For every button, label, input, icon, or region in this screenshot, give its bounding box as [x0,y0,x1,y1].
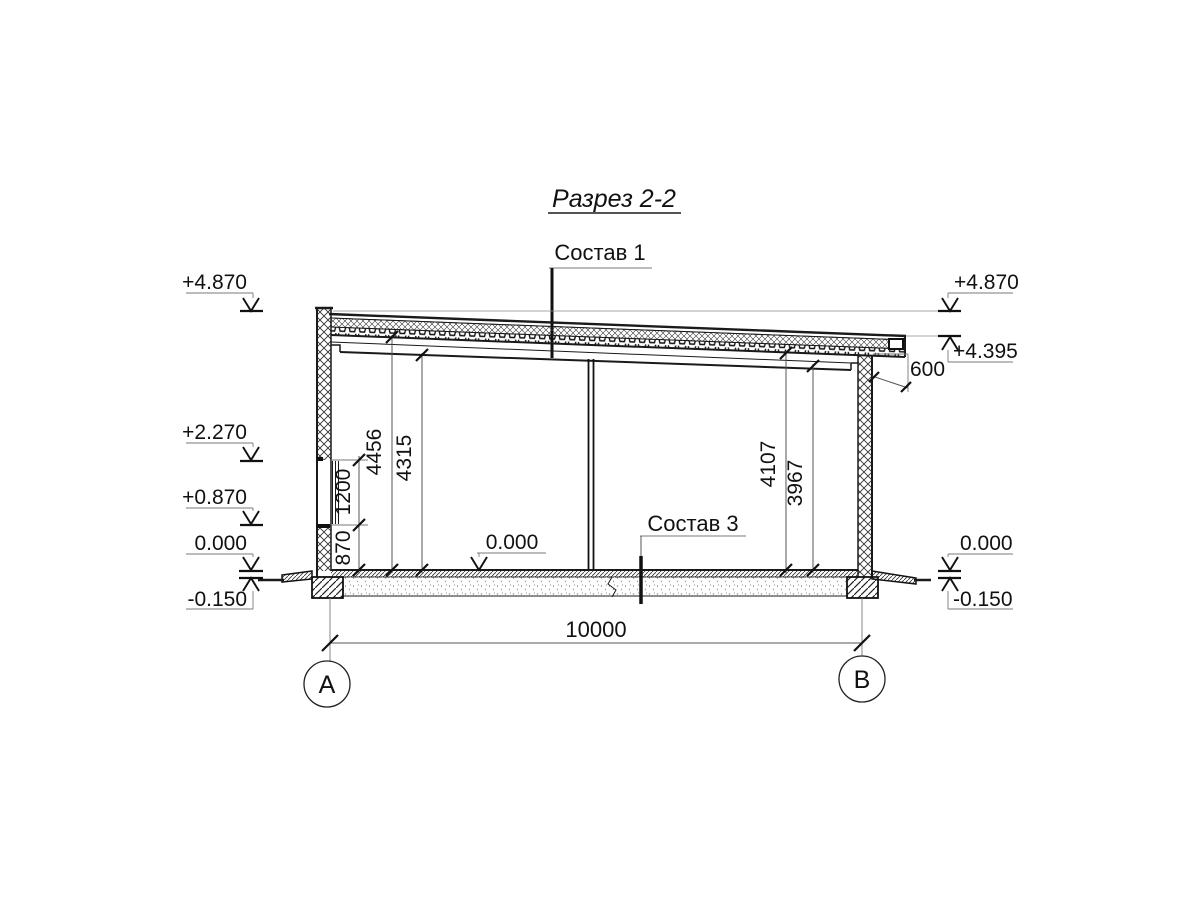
section-drawing: Разрез 2-2 Состав 1 [0,0,1200,900]
elevation-value: +4.395 [953,340,1018,363]
dim-roof-overhang: 600 [869,354,945,392]
level-arrow-down [243,298,259,311]
floor-screed-band [331,570,858,577]
drawing-title: Разрез 2-2 [552,185,676,213]
elevation-mark-right-4870: +4.870 [938,271,1019,311]
dim-span-axes: 10000 [322,598,870,661]
left-wall-hatch-upper [317,308,331,460]
level-arrow-down [243,511,259,524]
dim-10000-label: 10000 [565,617,626,642]
axis-b-label: В [854,666,871,694]
dim-heights-right: 4107 3967 [757,347,819,576]
window-head-detail [317,457,323,461]
level-arrow-down [471,557,487,570]
elevation-value: 0.000 [194,532,247,555]
elevation-value: +4.870 [954,271,1019,294]
right-corbel [851,363,858,370]
elevation-mark-left-4870: +4.870 [182,271,263,311]
elevation-mark-left-0870: +0.870 [182,486,263,525]
axis-a-label: А [319,671,336,699]
callout-floor-label: Состав 3 [647,511,738,536]
axis-bubble-a: А [304,661,350,707]
elevation-mark-right-4395: +4.395 [938,336,1018,363]
left-corbel [331,345,340,352]
dim-heights-left: 4456 4315 [363,331,428,576]
dim-1200-label: 1200 [332,469,355,516]
elevation-value: 0.000 [960,532,1013,555]
blind-area-right [872,571,931,584]
elevation-value: +4.870 [182,271,247,294]
level-arrow-down [942,298,958,311]
floor-slab [331,570,858,597]
right-wall [858,355,872,577]
center-column [589,359,594,570]
dim-4107-label: 4107 [757,441,780,488]
elevation-value: 0.000 [486,531,539,554]
level-arrow-down [243,557,259,570]
dim-870-label: 870 [332,530,355,565]
dim-3967-label: 3967 [784,460,807,507]
roof-edge-detail [889,339,903,349]
foundation-right [847,577,878,598]
window-sill-detail [317,524,330,528]
elevation-mark-right-0000: 0.000 [938,532,1013,571]
elevation-mark-left-0000: 0.000 [186,532,263,571]
callout-roof-label: Состав 1 [554,240,645,265]
elevation-mark-left-minus0150: -0.150 [186,578,263,611]
elevation-value: +2.270 [182,421,247,444]
floor-bedding-layer [343,577,848,596]
right-wall-hatch [858,355,872,577]
left-wall-hatch-lower [317,525,331,571]
axis-bubble-b: В [839,656,885,702]
dim-600-label: 600 [910,358,945,381]
elevation-value: -0.150 [953,588,1013,611]
elevation-mark-left-2270: +2.270 [182,421,263,461]
foundation-left [312,577,343,598]
dim-4315-label: 4315 [393,435,416,482]
blind-area-left [258,571,312,582]
level-arrow-down [942,557,958,570]
elevation-mark-interior-floor: 0.000 [471,531,546,570]
drawing-sheet: Разрез 2-2 Состав 1 [0,0,1200,900]
elevation-value: -0.150 [187,588,247,611]
elevation-mark-right-minus0150: -0.150 [938,578,1013,611]
roof-assembly [329,314,906,370]
title-block: Разрез 2-2 [548,185,681,213]
elevation-value: +0.870 [182,486,247,509]
dim-4456-label: 4456 [363,429,386,476]
level-arrow-down [243,447,259,460]
